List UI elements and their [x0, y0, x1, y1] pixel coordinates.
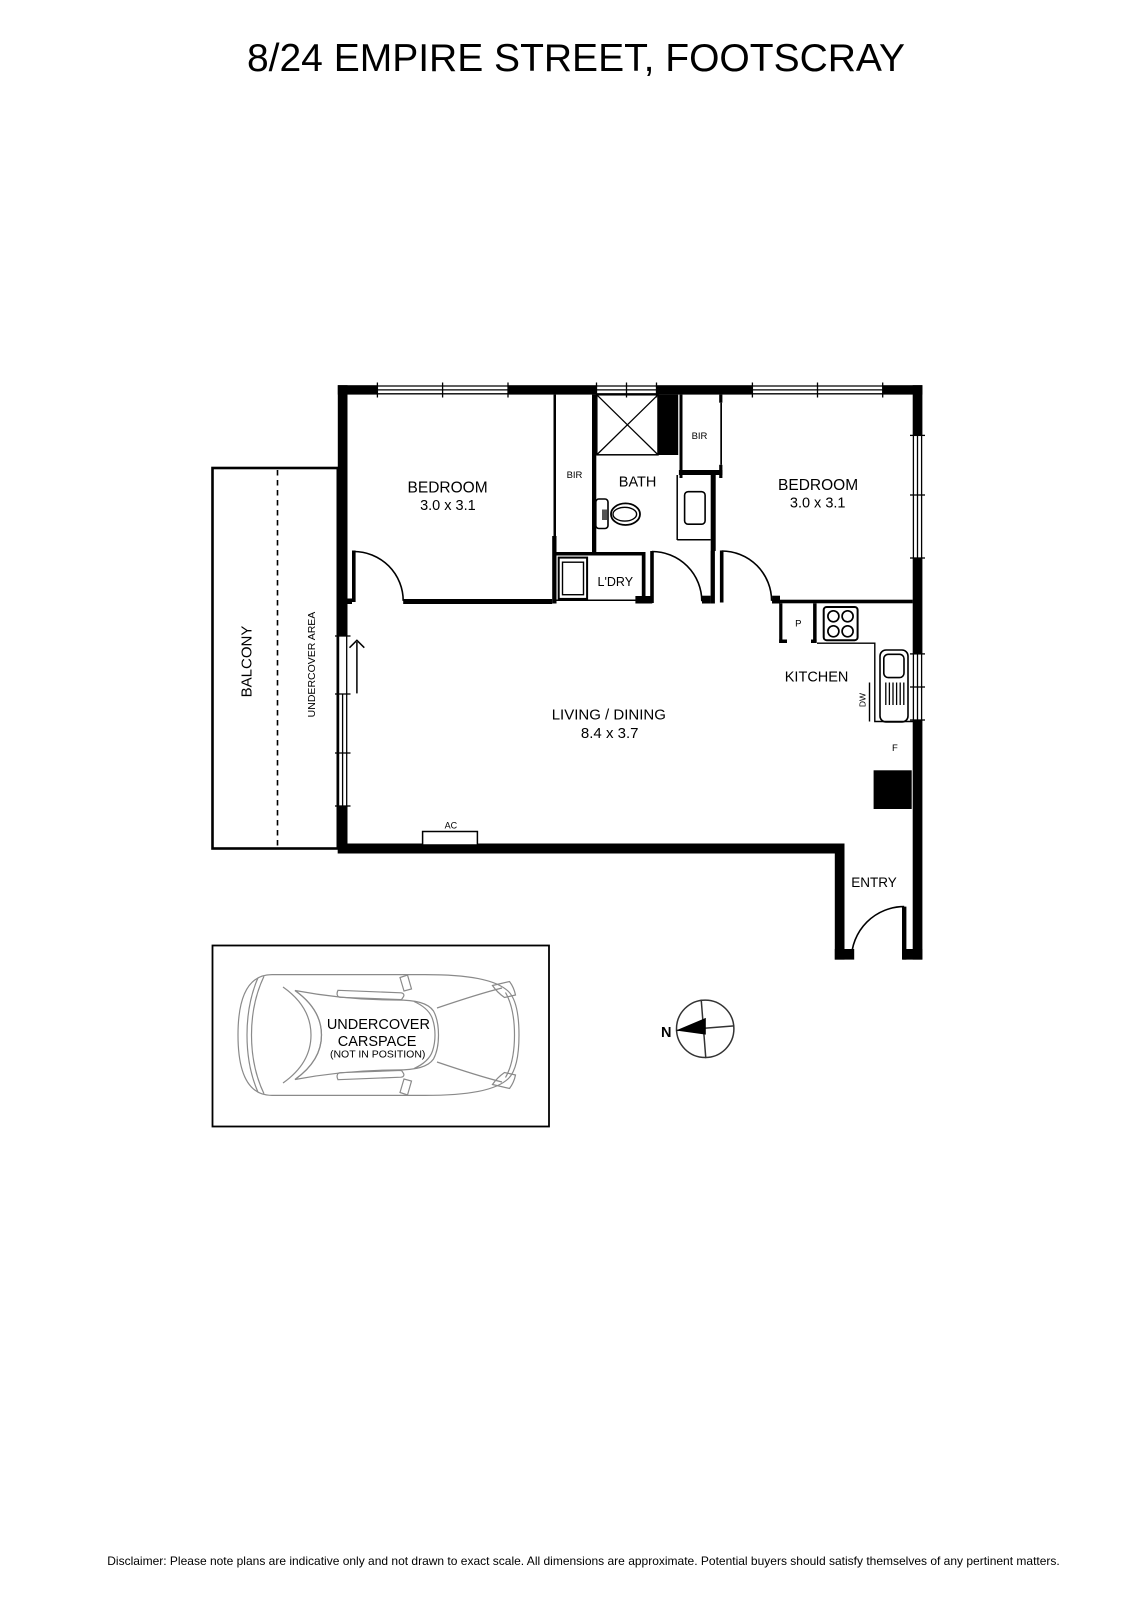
svg-text:LIVING / DINING: LIVING / DINING — [552, 707, 666, 724]
svg-text:BIR: BIR — [567, 470, 583, 481]
svg-text:BALCONY: BALCONY — [239, 626, 256, 698]
svg-text:3.0 x 3.1: 3.0 x 3.1 — [420, 498, 476, 514]
svg-text:BIR: BIR — [692, 431, 708, 442]
svg-text:DW: DW — [857, 693, 867, 707]
svg-text:BEDROOM: BEDROOM — [408, 480, 488, 497]
svg-text:F: F — [892, 743, 898, 754]
svg-text:(NOT IN POSITION): (NOT IN POSITION) — [330, 1049, 425, 1061]
svg-text:KITCHEN: KITCHEN — [785, 670, 849, 686]
svg-text:P: P — [795, 618, 801, 629]
svg-text:N: N — [661, 1025, 671, 1041]
svg-text:UNDERCOVER: UNDERCOVER — [327, 1017, 430, 1033]
svg-text:8.4 x 3.7: 8.4 x 3.7 — [581, 725, 639, 742]
svg-text:UNDERCOVER AREA: UNDERCOVER AREA — [306, 612, 318, 718]
svg-text:AC: AC — [445, 821, 458, 831]
svg-text:3.0 x 3.1: 3.0 x 3.1 — [790, 495, 846, 511]
svg-text:L'DRY: L'DRY — [598, 575, 634, 589]
svg-text:8/24 EMPIRE STREET, FOOTSCRAY: 8/24 EMPIRE STREET, FOOTSCRAY — [247, 37, 905, 80]
svg-text:BEDROOM: BEDROOM — [778, 477, 858, 494]
svg-text:BATH: BATH — [619, 475, 657, 491]
svg-text:ENTRY: ENTRY — [851, 875, 897, 890]
svg-text:Disclaimer: Please note plans: Disclaimer: Please note plans are indica… — [107, 1554, 1060, 1568]
